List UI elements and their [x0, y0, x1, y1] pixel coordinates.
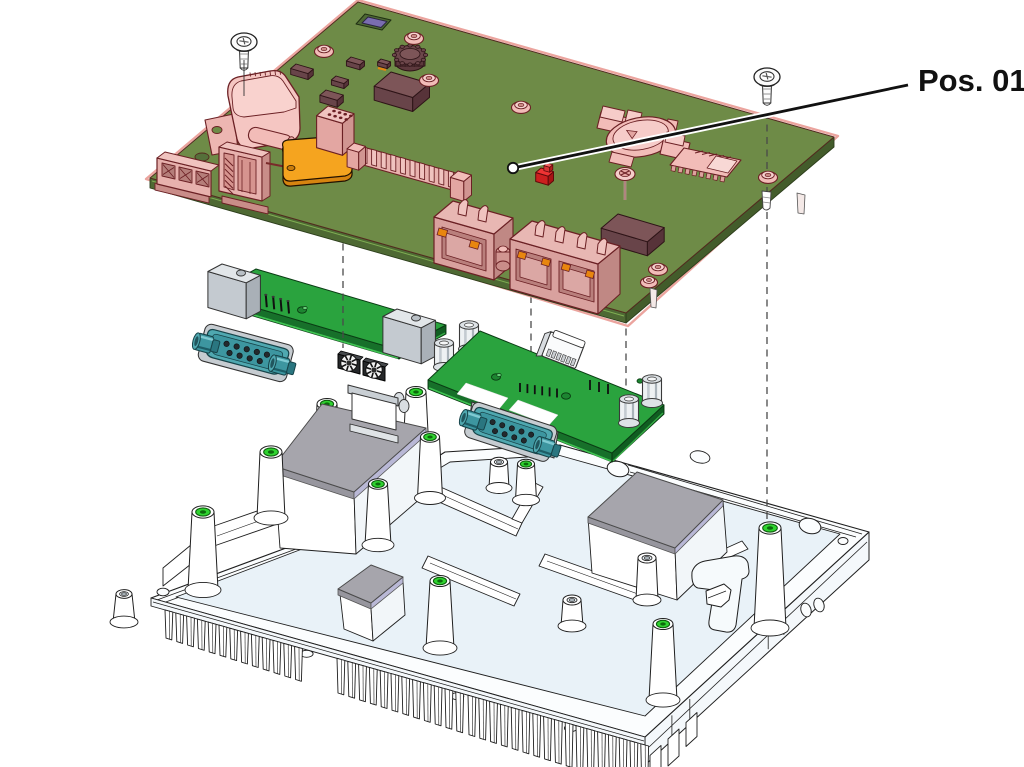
svg-text:Pos. 01: Pos. 01 [918, 63, 1024, 98]
